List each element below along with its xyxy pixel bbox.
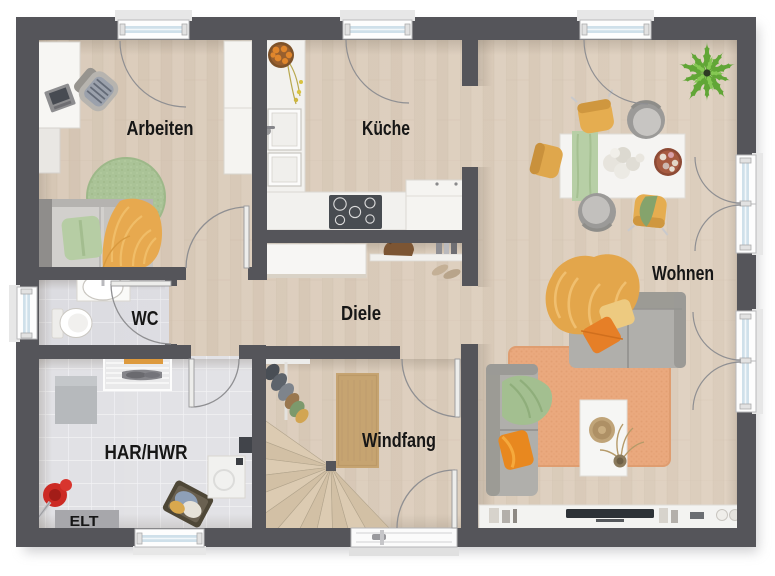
svg-text:Diele: Diele: [341, 302, 381, 325]
svg-text:Windfang: Windfang: [362, 429, 436, 452]
svg-text:Arbeiten: Arbeiten: [127, 117, 194, 140]
svg-text:HAR/HWR: HAR/HWR: [105, 441, 188, 464]
svg-text:ELT: ELT: [70, 513, 99, 530]
svg-text:Wohnen: Wohnen: [652, 262, 714, 285]
svg-text:WC: WC: [132, 307, 159, 330]
svg-text:Küche: Küche: [362, 117, 410, 140]
